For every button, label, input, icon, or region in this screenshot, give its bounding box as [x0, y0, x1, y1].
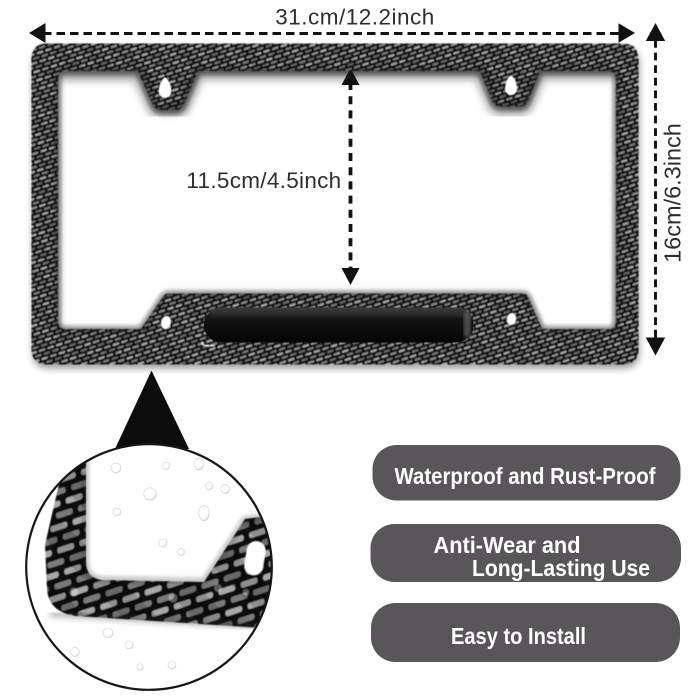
svg-text:Long-Lasting Use: Long-Lasting Use: [472, 555, 650, 581]
svg-text:Waterproof and Rust-Proof: Waterproof and Rust-Proof: [395, 463, 656, 489]
svg-text:31.cm/12.2inch: 31.cm/12.2inch: [275, 5, 435, 30]
svg-text:Easy to Install: Easy to Install: [451, 623, 586, 649]
svg-text:11.5cm/4.5inch: 11.5cm/4.5inch: [186, 168, 341, 193]
svg-text:16cm/6.3inch: 16cm/6.3inch: [660, 123, 686, 263]
